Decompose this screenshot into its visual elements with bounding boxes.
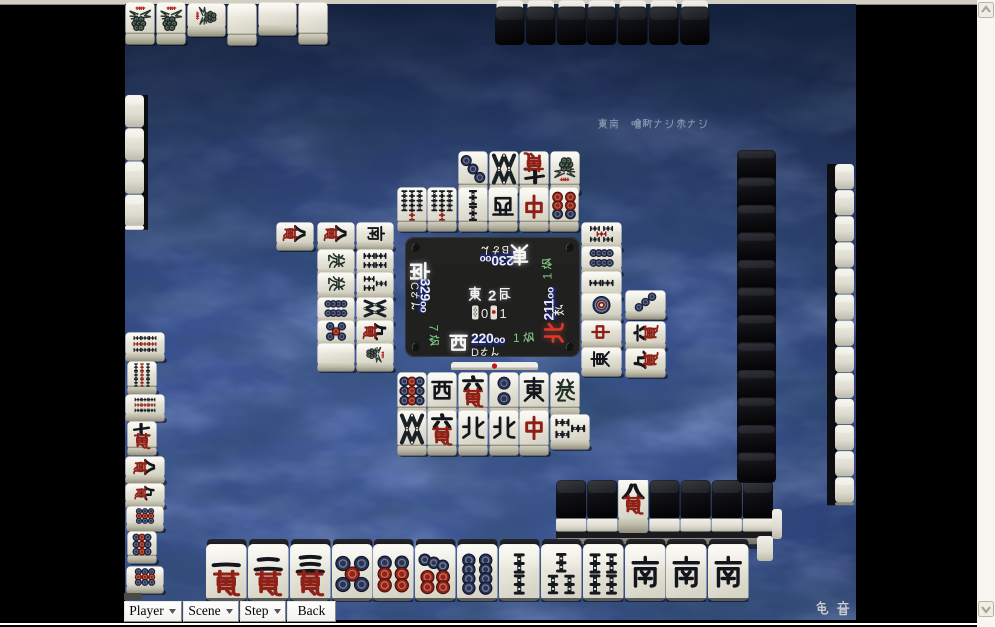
- svg-text:1: 1: [513, 331, 520, 344]
- svg-text:1: 1: [500, 306, 507, 321]
- svg-text:B: B: [502, 244, 509, 255]
- svg-text:C: C: [409, 282, 420, 290]
- svg-text:2: 2: [488, 288, 496, 304]
- svg-text:1: 1: [541, 273, 554, 280]
- svg-text:D: D: [471, 347, 479, 358]
- svg-text:0: 0: [481, 306, 488, 321]
- svg-text:7: 7: [428, 325, 441, 332]
